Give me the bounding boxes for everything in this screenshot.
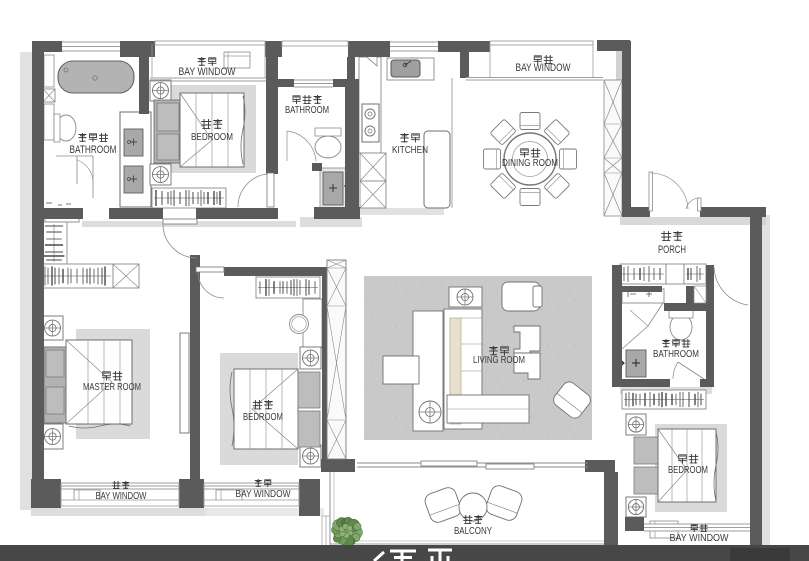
svg-text:BAY WINDOW: BAY WINDOW <box>96 491 147 502</box>
svg-text:BATHROOM: BATHROOM <box>653 348 699 360</box>
svg-text:LIVING ROOM: LIVING ROOM <box>473 354 525 366</box>
svg-text:BATHROOM: BATHROOM <box>70 144 117 156</box>
svg-text:BAY WINDOW: BAY WINDOW <box>670 533 729 544</box>
svg-text:MASTER ROOM: MASTER ROOM <box>83 381 141 393</box>
svg-text:BALCONY: BALCONY <box>454 525 492 537</box>
svg-text:BAY WINDOW: BAY WINDOW <box>236 489 291 500</box>
svg-text:PORCH: PORCH <box>658 244 686 256</box>
svg-text:BEDROOM: BEDROOM <box>191 131 233 143</box>
svg-text:BEDROOM: BEDROOM <box>243 411 283 423</box>
svg-text:BAY WINDOW: BAY WINDOW <box>516 62 571 74</box>
svg-text:DINING ROOM: DINING ROOM <box>502 157 558 169</box>
svg-text:BEDROOM: BEDROOM <box>668 464 708 476</box>
svg-text:BAY WINDOW: BAY WINDOW <box>179 66 236 78</box>
svg-text:BATHROOM: BATHROOM <box>285 104 329 116</box>
svg-text:KITCHEN: KITCHEN <box>392 144 428 156</box>
